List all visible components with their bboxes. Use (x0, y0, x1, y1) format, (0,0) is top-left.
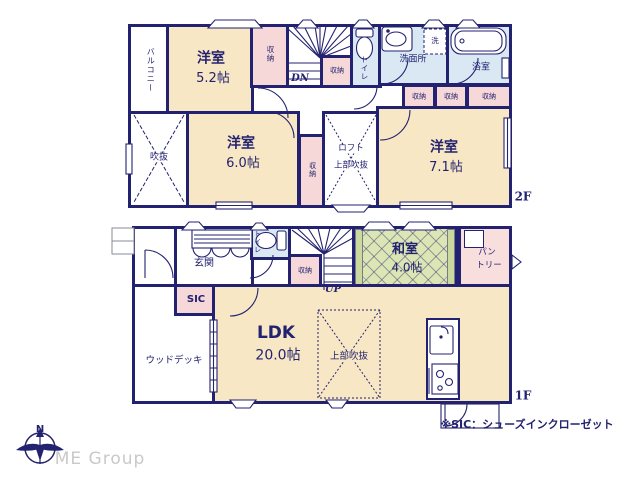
label-room71-name: 洋室 (430, 141, 458, 156)
label-wood-deck: ウッドデッキ (145, 356, 202, 366)
label-washitsu-size: 4.0帖 (391, 262, 422, 275)
label-washitsu-name: 和室 (392, 243, 418, 257)
room-western-7-1 (376, 106, 512, 208)
label-entrance: 玄関 (194, 259, 214, 270)
label-laundry: 洗 (431, 37, 439, 45)
room-entrance (174, 226, 254, 288)
sic-note: ※SIC：シューズインクローゼット (440, 419, 613, 431)
label-closet-2f-c: 収納 (308, 162, 315, 178)
label-pantry-1: パン (478, 249, 495, 258)
label-closet-2f-stairs: 収納 (330, 67, 344, 74)
label-loft-1: ロフト (337, 145, 365, 154)
kitchen-counter (426, 318, 460, 400)
label-up: UP (325, 285, 341, 296)
label-closet-b1: 収納 (412, 93, 426, 100)
label-room71-size: 7.1帖 (429, 161, 463, 175)
label-ldk-void: 上部吹抜 (329, 352, 369, 362)
label-room60-size: 6.0帖 (226, 157, 260, 171)
label-pantry-2: トリー (476, 262, 502, 271)
label-closet-1f: 収納 (298, 267, 312, 274)
label-room60-name: 洋室 (227, 137, 255, 152)
room-western-5-2 (166, 24, 254, 115)
label-ldk-name: LDK (257, 325, 295, 343)
loft-void (322, 111, 380, 208)
label-room52-size: 5.2帖 (196, 72, 230, 86)
label-sic: SIC (187, 295, 205, 306)
company-logo-text: ME Group (55, 451, 146, 469)
room-ldk (212, 284, 512, 404)
label-room52-name: 洋室 (197, 52, 225, 67)
room-bath (446, 24, 512, 86)
label-closet-b2: 収納 (444, 93, 458, 100)
label-washroom: 洗面所 (399, 55, 426, 64)
tatami-edge-right (447, 229, 455, 285)
label-closet-2f-a: 収納 (266, 46, 274, 63)
label-1f: 1F (515, 390, 532, 403)
label-bath: 浴室 (472, 63, 490, 72)
label-2f: 2F (515, 191, 532, 204)
pantry-closet (464, 230, 484, 248)
tatami-edge-left (355, 229, 363, 285)
label-toilet-2f: トイレ (360, 55, 368, 81)
label-balcony: バルコニー (146, 48, 154, 93)
compass-n-label: N (36, 425, 44, 436)
pantry-door-icon (512, 255, 521, 269)
porch (132, 226, 178, 288)
label-dn: DN (291, 74, 309, 85)
label-toilet-1f: トイレ (253, 230, 260, 254)
label-loft-2: 上部吹抜 (333, 162, 369, 171)
label-ldk-size: 20.0帖 (255, 349, 300, 364)
floorplan-canvas: バルコニー 洋室 5.2帖 収納 DN 収納 トイレ 洗面所 洗 浴室 収納 収… (0, 0, 640, 480)
label-void-2f: 吹抜 (149, 153, 169, 162)
label-closet-b3: 収納 (482, 93, 496, 100)
